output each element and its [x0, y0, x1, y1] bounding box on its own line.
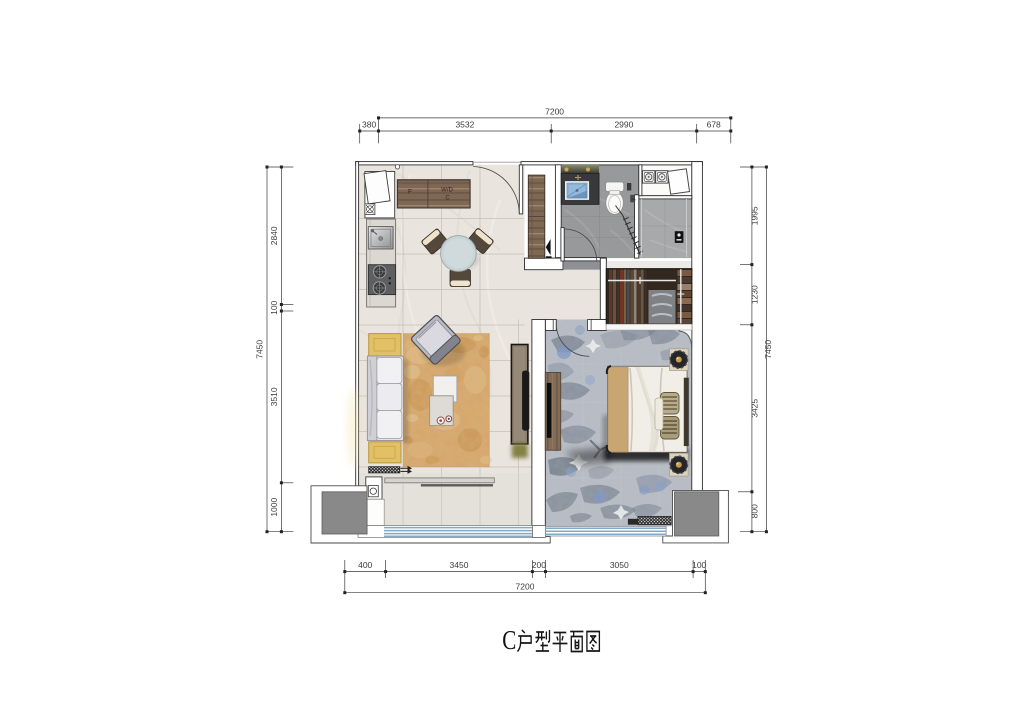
svg-text:1000: 1000	[269, 497, 279, 516]
svg-text:2990: 2990	[614, 119, 633, 129]
svg-text:200: 200	[532, 560, 546, 570]
svg-text:3450: 3450	[450, 560, 469, 570]
svg-text:100: 100	[269, 300, 279, 314]
svg-text:2840: 2840	[269, 226, 279, 245]
svg-text:800: 800	[749, 504, 759, 518]
svg-text:678: 678	[707, 119, 721, 129]
svg-text:100: 100	[692, 560, 706, 570]
svg-text:W/D: W/D	[441, 188, 453, 194]
svg-text:7200: 7200	[516, 581, 535, 591]
svg-text:3425: 3425	[749, 399, 759, 418]
svg-text:400: 400	[358, 560, 372, 570]
svg-text:F: F	[408, 189, 412, 196]
svg-text:1230: 1230	[749, 285, 759, 304]
svg-text:1995: 1995	[749, 206, 759, 225]
svg-text:C: C	[445, 196, 450, 202]
svg-text:380: 380	[362, 119, 376, 129]
svg-text:7450: 7450	[255, 340, 265, 359]
svg-text:3510: 3510	[269, 387, 279, 406]
svg-text:7200: 7200	[545, 106, 564, 116]
svg-text:C: C	[502, 626, 516, 656]
svg-text:7450: 7450	[763, 340, 773, 359]
svg-text:3050: 3050	[610, 560, 629, 570]
svg-text:3532: 3532	[455, 119, 474, 129]
